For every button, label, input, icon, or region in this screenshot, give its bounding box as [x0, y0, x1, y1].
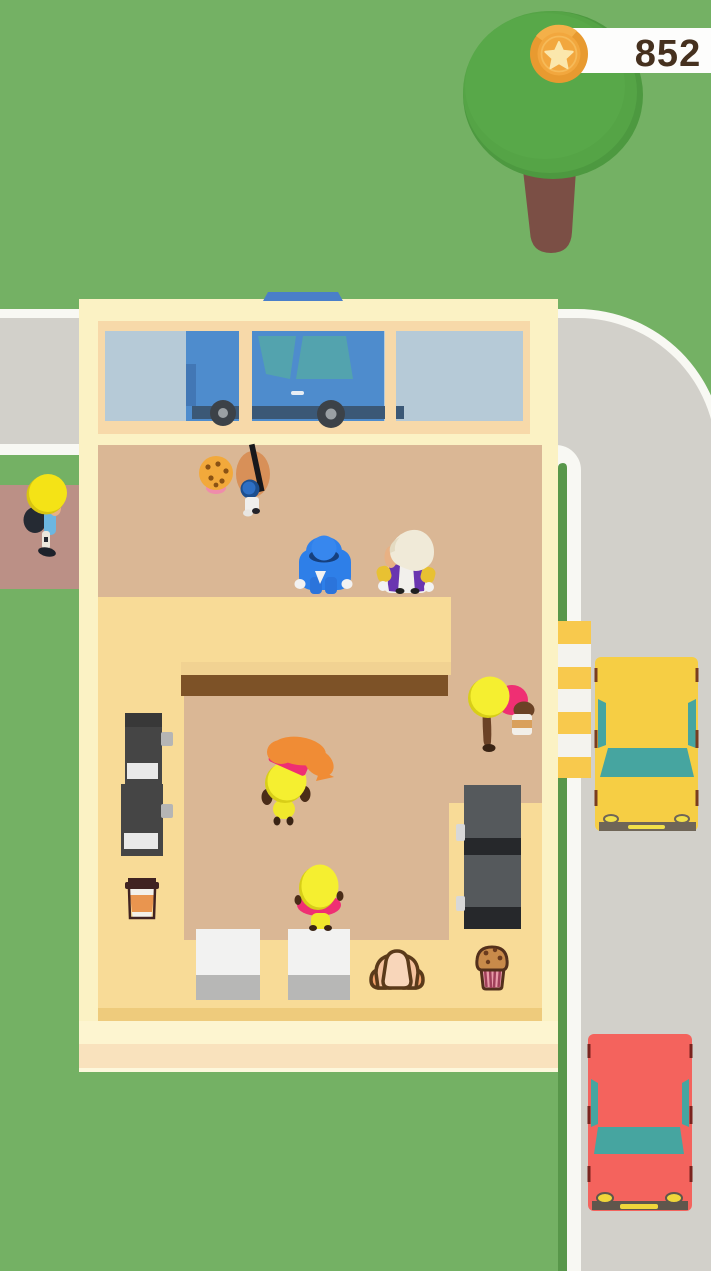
svg-text:852: 852 [635, 33, 701, 75]
